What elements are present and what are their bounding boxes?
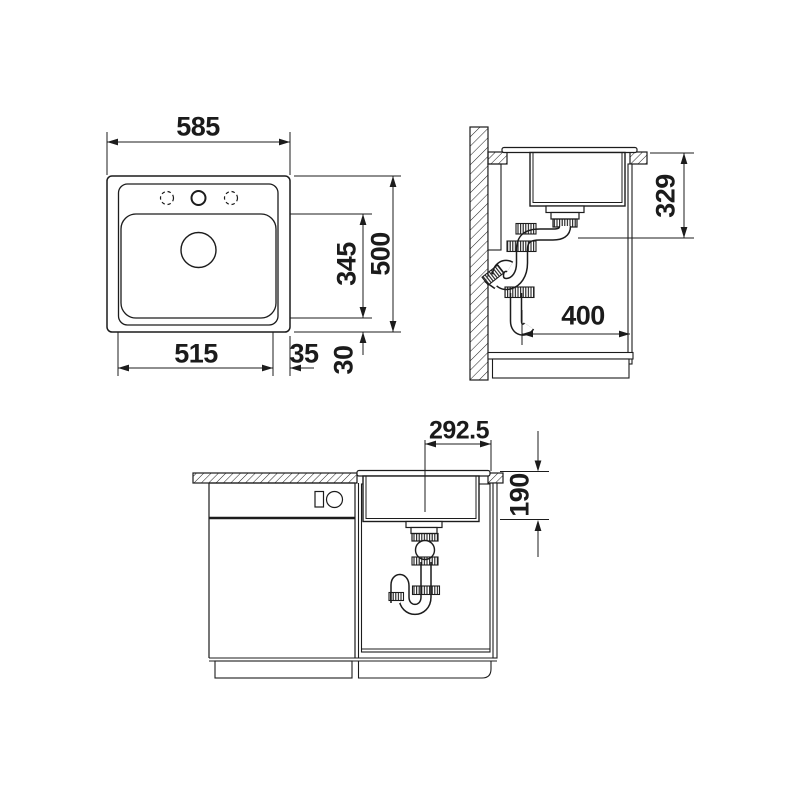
technical-drawing: 585 515 35 30 345 500 329 400 292.5 190 — [0, 0, 800, 800]
dim-label-drain-offset: 292.5 — [429, 419, 489, 444]
basin-front-outer — [363, 476, 479, 522]
cabinet-right-panel — [493, 483, 497, 658]
drain-strainer-side — [546, 206, 584, 227]
drawing-canvas — [0, 0, 800, 800]
cabinet-floor — [488, 353, 633, 360]
plinth-right — [359, 661, 492, 678]
wall-batten — [488, 164, 501, 250]
basin-profile-outer — [530, 153, 625, 207]
drain-strainer-front — [406, 522, 442, 542]
countertop-right-section — [630, 152, 647, 164]
dim-label-outlet-height: 329 — [653, 174, 680, 218]
sink-rim-front — [357, 471, 490, 477]
left-cabinet — [209, 483, 355, 658]
dim-label-basin-length: 345 — [334, 242, 361, 286]
plinth-left — [215, 661, 352, 678]
dim-label-outlet-offset: 400 — [561, 303, 605, 330]
vent-slot — [315, 492, 324, 508]
wall-hatch — [470, 127, 488, 380]
front-view — [193, 431, 549, 678]
cabinet-base — [209, 658, 497, 678]
dim-label-cutout-width: 515 — [174, 341, 218, 368]
knob — [327, 492, 343, 508]
p-trap-front — [389, 541, 440, 610]
dim-label-edge-gap: 35 — [289, 341, 318, 368]
dim-label-overall-depth: 500 — [368, 232, 395, 276]
countertop-left-section — [488, 152, 507, 164]
sink-outer-edge — [107, 176, 290, 332]
dim-label-bottom-gap: 30 — [331, 345, 358, 374]
countertop-front-left — [193, 473, 357, 483]
cabinet-plinth — [493, 359, 630, 378]
sink-rim-profile — [502, 148, 637, 153]
dim-label-basin-depth: 190 — [507, 473, 534, 517]
side-view — [470, 127, 694, 380]
dim-label-overall-width: 585 — [176, 114, 220, 141]
